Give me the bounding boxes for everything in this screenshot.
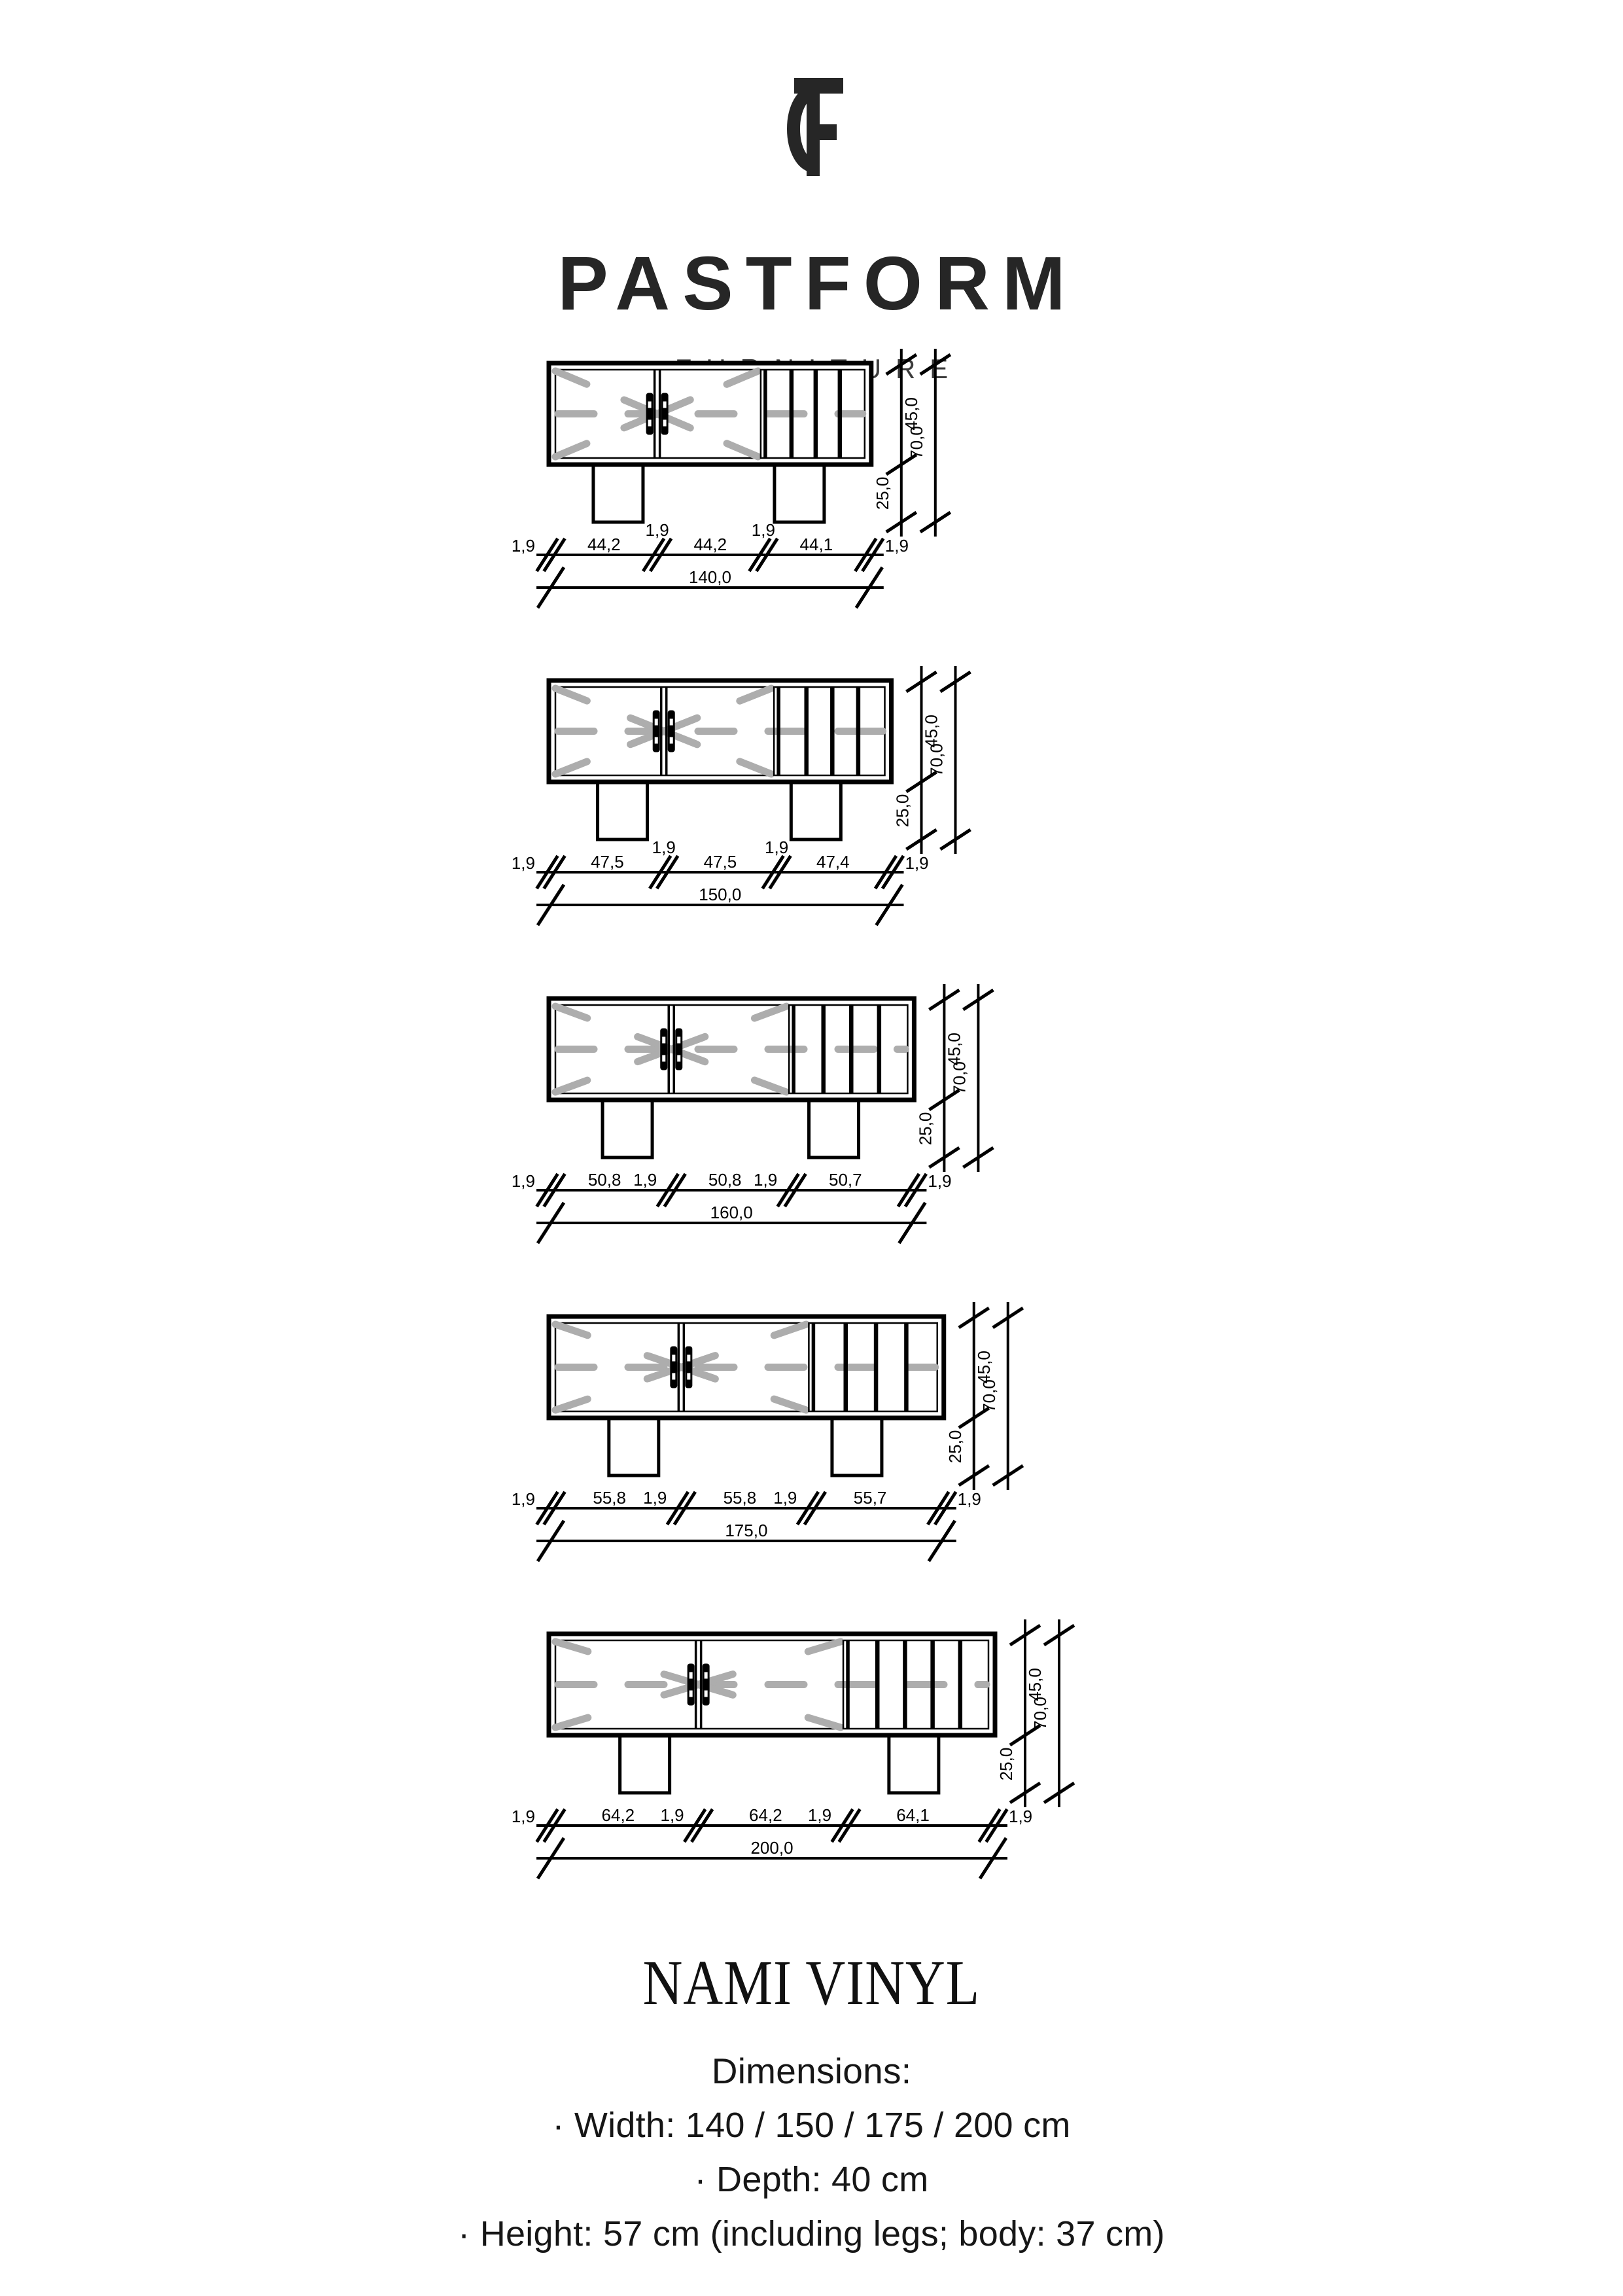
drawing-nami-vinyl-140: 1,91,944,244,244,11,91,9140,045,025,070,… <box>458 324 1125 625</box>
svg-text:44,2: 44,2 <box>693 535 727 554</box>
svg-text:1,9: 1,9 <box>958 1489 981 1509</box>
svg-text:1,9: 1,9 <box>646 520 669 540</box>
svg-text:70,0: 70,0 <box>927 743 947 777</box>
svg-text:140,0: 140,0 <box>689 567 731 587</box>
svg-text:1,9: 1,9 <box>754 1170 777 1190</box>
svg-text:1,9: 1,9 <box>512 1489 535 1509</box>
svg-text:70,0: 70,0 <box>949 1061 969 1095</box>
svg-text:1,9: 1,9 <box>765 838 788 857</box>
svg-text:50,8: 50,8 <box>708 1170 742 1190</box>
svg-text:1,9: 1,9 <box>643 1488 667 1508</box>
spec-sheet-page: PASTFORM FURNITURE 1,91,944,244,244,11,9… <box>0 0 1623 2296</box>
height-dimensions: 45,025,070,0 <box>893 666 971 854</box>
svg-text:47,5: 47,5 <box>591 852 624 872</box>
svg-text:70,0: 70,0 <box>907 426 926 459</box>
height-dimensions: 45,025,070,0 <box>873 349 951 537</box>
svg-text:45,0: 45,0 <box>922 715 941 748</box>
legs <box>609 1415 882 1475</box>
svg-text:1,9: 1,9 <box>905 853 929 873</box>
svg-text:1,9: 1,9 <box>512 853 535 873</box>
svg-text:44,2: 44,2 <box>587 535 621 554</box>
svg-text:1,9: 1,9 <box>512 1807 535 1826</box>
legs <box>593 462 824 522</box>
legs <box>620 1733 939 1793</box>
drawing-nami-vinyl-200: 1,91,964,264,264,11,91,9200,045,025,070,… <box>458 1595 1125 1896</box>
width-segment-dimension: 1,91,944,244,244,11,91,9 <box>512 520 909 571</box>
svg-text:45,0: 45,0 <box>944 1033 964 1066</box>
svg-text:1,9: 1,9 <box>652 838 676 857</box>
svg-text:1,9: 1,9 <box>928 1171 951 1191</box>
width-total-dimension: 150,0 <box>536 885 904 925</box>
svg-text:1,9: 1,9 <box>752 520 775 540</box>
svg-text:160,0: 160,0 <box>710 1203 753 1222</box>
spec-line-depth: · Depth: 40 cm <box>0 2153 1623 2207</box>
width-total-dimension: 140,0 <box>536 567 884 608</box>
drawing-nami-vinyl-175: 1,91,955,855,855,71,91,9175,045,025,070,… <box>458 1277 1125 1578</box>
svg-text:1,9: 1,9 <box>633 1170 657 1190</box>
svg-text:1,9: 1,9 <box>1009 1807 1032 1826</box>
svg-text:1,9: 1,9 <box>773 1488 797 1508</box>
width-segment-dimension: 1,91,964,264,264,11,91,9 <box>512 1805 1032 1842</box>
svg-text:25,0: 25,0 <box>915 1112 935 1146</box>
height-dimensions: 45,025,070,0 <box>915 984 993 1172</box>
svg-text:55,8: 55,8 <box>593 1488 626 1508</box>
svg-text:25,0: 25,0 <box>873 477 892 510</box>
legs <box>602 1097 858 1157</box>
drawing-nami-vinyl-150: 1,91,947,547,547,41,91,9150,045,025,070,… <box>458 641 1125 942</box>
svg-text:200,0: 200,0 <box>750 1838 793 1858</box>
svg-text:64,1: 64,1 <box>896 1805 930 1825</box>
svg-text:45,0: 45,0 <box>974 1351 994 1384</box>
svg-text:1,9: 1,9 <box>885 536 909 556</box>
svg-text:25,0: 25,0 <box>893 794 913 828</box>
cabinet-body <box>549 1316 944 1418</box>
width-segment-dimension: 1,91,947,547,547,41,91,9 <box>512 838 929 889</box>
height-dimensions: 45,025,070,0 <box>996 1619 1074 1807</box>
spec-line-height: · Height: 57 cm (including legs; body: 3… <box>0 2207 1623 2261</box>
svg-text:50,8: 50,8 <box>588 1170 621 1190</box>
svg-text:70,0: 70,0 <box>1030 1697 1050 1730</box>
brand-name: PASTFORM <box>0 239 1623 327</box>
svg-text:47,4: 47,4 <box>816 852 850 872</box>
svg-text:1,9: 1,9 <box>512 536 535 556</box>
svg-text:1,9: 1,9 <box>808 1805 831 1825</box>
svg-text:25,0: 25,0 <box>945 1430 965 1464</box>
svg-text:44,1: 44,1 <box>800 535 833 554</box>
svg-text:64,2: 64,2 <box>749 1805 782 1825</box>
svg-text:70,0: 70,0 <box>979 1379 999 1413</box>
height-dimensions: 45,025,070,0 <box>945 1302 1023 1490</box>
width-total-dimension: 175,0 <box>536 1521 956 1561</box>
product-title-wrap: NAMI VINYL <box>0 1947 1623 2019</box>
svg-text:1,9: 1,9 <box>660 1805 684 1825</box>
dimensions-heading: Dimensions: <box>0 2044 1623 2098</box>
width-total-dimension: 200,0 <box>536 1838 1007 1879</box>
svg-text:55,8: 55,8 <box>724 1488 757 1508</box>
svg-text:175,0: 175,0 <box>725 1521 767 1540</box>
product-specs: Dimensions: · Width: 140 / 150 / 175 / 2… <box>0 2044 1623 2261</box>
svg-text:1,9: 1,9 <box>512 1171 535 1191</box>
svg-text:45,0: 45,0 <box>1025 1668 1045 1701</box>
svg-text:50,7: 50,7 <box>829 1170 862 1190</box>
pastform-monogram-icon <box>766 78 843 176</box>
legs <box>598 779 841 839</box>
spec-line-width: · Width: 140 / 150 / 175 / 200 cm <box>0 2098 1623 2153</box>
width-segment-dimension: 1,91,950,850,850,71,91,9 <box>512 1170 952 1207</box>
width-total-dimension: 160,0 <box>536 1203 926 1243</box>
svg-text:25,0: 25,0 <box>996 1748 1016 1781</box>
svg-text:64,2: 64,2 <box>602 1805 635 1825</box>
drawing-nami-vinyl-160: 1,91,950,850,850,71,91,9160,045,025,070,… <box>458 959 1125 1260</box>
svg-text:45,0: 45,0 <box>901 397 921 431</box>
product-title: NAMI VINYL <box>643 1947 981 2019</box>
svg-text:47,5: 47,5 <box>704 852 737 872</box>
svg-text:150,0: 150,0 <box>699 885 741 904</box>
svg-text:55,7: 55,7 <box>854 1488 887 1508</box>
width-segment-dimension: 1,91,955,855,855,71,91,9 <box>512 1488 981 1525</box>
